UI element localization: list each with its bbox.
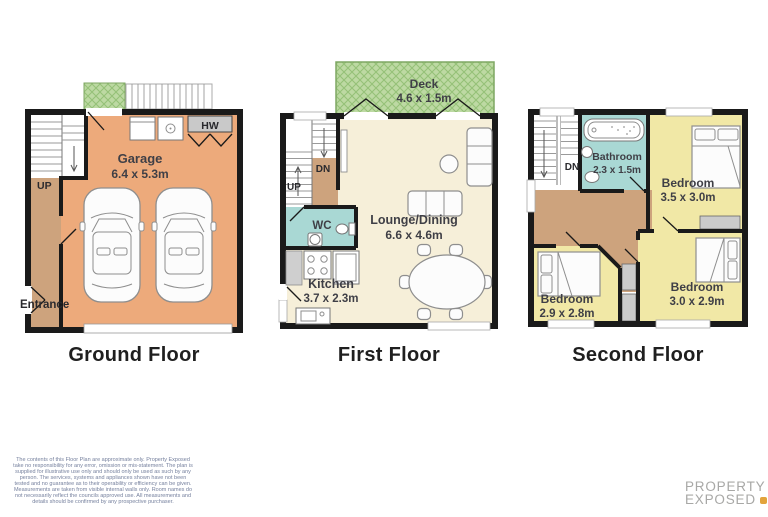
stairwell — [31, 115, 86, 178]
toilet — [349, 223, 355, 235]
bed — [696, 238, 740, 282]
bathtub — [584, 119, 644, 141]
kitchen-dims: 3.7 x 2.3m — [304, 293, 359, 305]
bedroom-label: Bedroom — [671, 280, 724, 294]
bedroom-dims: 3.0 x 2.9m — [670, 296, 725, 308]
laundry-bench — [130, 117, 155, 140]
floor-plan-canvas: Garage 6.4 x 5.3m UP HW Entrance Ground … — [0, 0, 768, 512]
disclaimer-text: The contents of this Floor Plan are appr… — [12, 457, 194, 505]
bathroom-dims: 2.3 x 1.5m — [593, 165, 641, 176]
closet — [622, 294, 636, 321]
ground-floor-title: Ground Floor — [68, 344, 199, 366]
sink — [296, 308, 330, 324]
ground-floor-plan: Garage 6.4 x 5.3m UP HW Entrance Ground … — [20, 83, 240, 366]
kitchen-label: Kitchen — [308, 277, 354, 291]
hw-label: HW — [201, 120, 219, 132]
kitchen-door-gap — [279, 284, 287, 300]
washing-machine — [158, 117, 183, 140]
garage-deck-door-gap — [86, 108, 122, 116]
wc-label: WC — [312, 220, 331, 232]
up-label: UP — [287, 182, 301, 193]
closet — [700, 216, 740, 229]
logo-line-2: EXPOSED — [685, 492, 756, 507]
hall-shelf — [341, 130, 347, 172]
bedroom-dims: 3.5 x 3.0m — [661, 192, 716, 204]
deck-dims: 4.6 x 1.5m — [397, 93, 452, 105]
deck-door-gap — [436, 112, 480, 120]
lounge-label: Lounge/Dining — [370, 213, 457, 227]
property-exposed-logo: PROPERTY EXPOSED — [685, 480, 767, 506]
stove — [304, 251, 331, 279]
window — [540, 108, 574, 116]
exterior-stairs — [126, 84, 212, 109]
ground-deck-patch — [84, 83, 125, 112]
deck-label: Deck — [410, 77, 439, 91]
window — [548, 320, 594, 328]
window — [279, 300, 287, 322]
basin — [582, 147, 593, 158]
window — [666, 108, 712, 116]
bedroom-label: Bedroom — [541, 292, 594, 306]
basin — [310, 235, 320, 245]
bed — [538, 252, 600, 296]
car — [80, 188, 144, 302]
dn-label: DN — [565, 162, 579, 173]
side-table — [440, 155, 458, 173]
first-floor-plan: Deck 4.6 x 1.5m Lounge/Dining 6.6 x 4.6m… — [279, 62, 495, 366]
garage-dims: 6.4 x 5.3m — [111, 167, 168, 181]
dn-label: DN — [316, 164, 330, 175]
window — [527, 180, 535, 212]
logo-accent-icon — [760, 497, 767, 504]
up-label: UP — [37, 180, 52, 192]
bathroom-label: Bathroom — [592, 151, 642, 163]
garage-door — [84, 324, 232, 333]
first-floor-title: First Floor — [338, 344, 440, 366]
car — [152, 188, 216, 302]
entrance-label: Entrance — [20, 299, 69, 311]
window — [428, 322, 490, 330]
kitchen-counter — [286, 251, 302, 285]
garage-label: Garage — [118, 151, 163, 166]
bedroom-label: Bedroom — [662, 176, 715, 190]
deck-door-gap — [344, 112, 388, 120]
bedroom-dims: 2.9 x 2.8m — [540, 308, 595, 320]
lounge-dims: 6.6 x 4.6m — [385, 228, 442, 242]
second-floor-title: Second Floor — [572, 344, 703, 366]
closet — [622, 264, 636, 290]
sofa — [467, 128, 492, 186]
window — [294, 112, 326, 120]
window — [656, 320, 710, 328]
hallway — [534, 190, 652, 246]
toilet-bowl — [336, 224, 348, 234]
second-floor-plan: Bathroom 2.3 x 1.5m Bedroom 3.5 x 3.0m B… — [527, 108, 745, 366]
